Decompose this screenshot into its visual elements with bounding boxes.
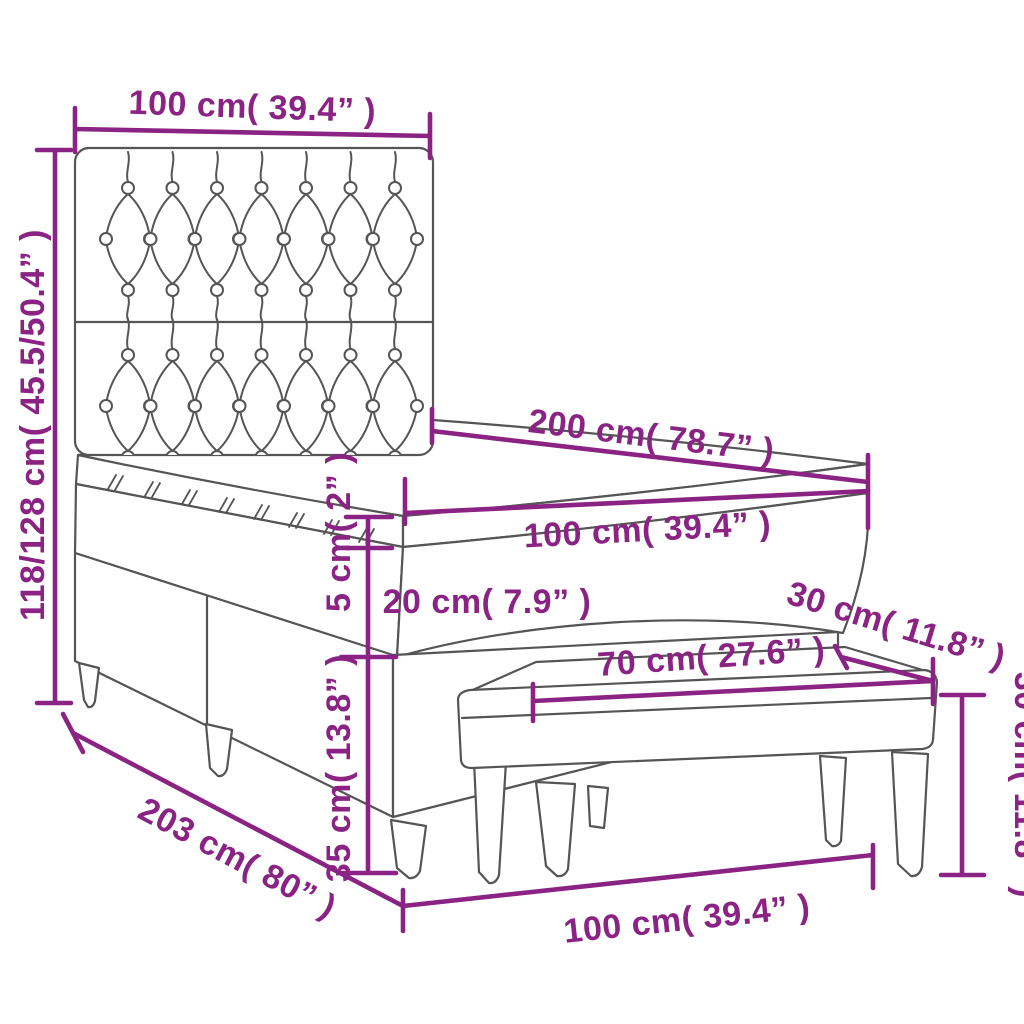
bench-leg-front-right: [892, 752, 928, 876]
bed-leg: [79, 663, 99, 707]
bed-leg: [391, 820, 426, 878]
bed-leg: [588, 786, 608, 828]
dim-line: [941, 695, 984, 875]
dim-label-headboard-width: 100 cm( 39.4” ): [128, 84, 377, 131]
furniture-line-art: [75, 148, 937, 883]
dim-label-base-height: 35 cm( 13.8” ): [320, 654, 358, 882]
headboard: [75, 148, 433, 487]
bed-leg: [206, 724, 232, 776]
bench-leg-back-left: [536, 782, 575, 876]
dim-label-bed-bottom-width: 100 cm( 39.4” ): [562, 887, 812, 951]
dim-label-bench-height: 30 cm( 11.8” ): [1007, 672, 1024, 898]
dim-label-mattress-thickness: 20 cm( 7.9” ): [383, 583, 592, 621]
dim-label-topper-thickness: 5 cm( 2” ): [320, 452, 358, 612]
dimension-diagram: 100 cm( 39.4” ) 118/128 cm( 45.5/50.4” )…: [0, 0, 1024, 1024]
diagram-page: 100 cm( 39.4” ) 118/128 cm( 45.5/50.4” )…: [0, 0, 1024, 1024]
dim-bench-height: [941, 695, 984, 875]
dim-label-overall-height: 118/128 cm( 45.5/50.4” ): [14, 229, 52, 621]
bench-leg-back-right: [820, 756, 846, 846]
bench-leg-front-left: [474, 760, 506, 883]
